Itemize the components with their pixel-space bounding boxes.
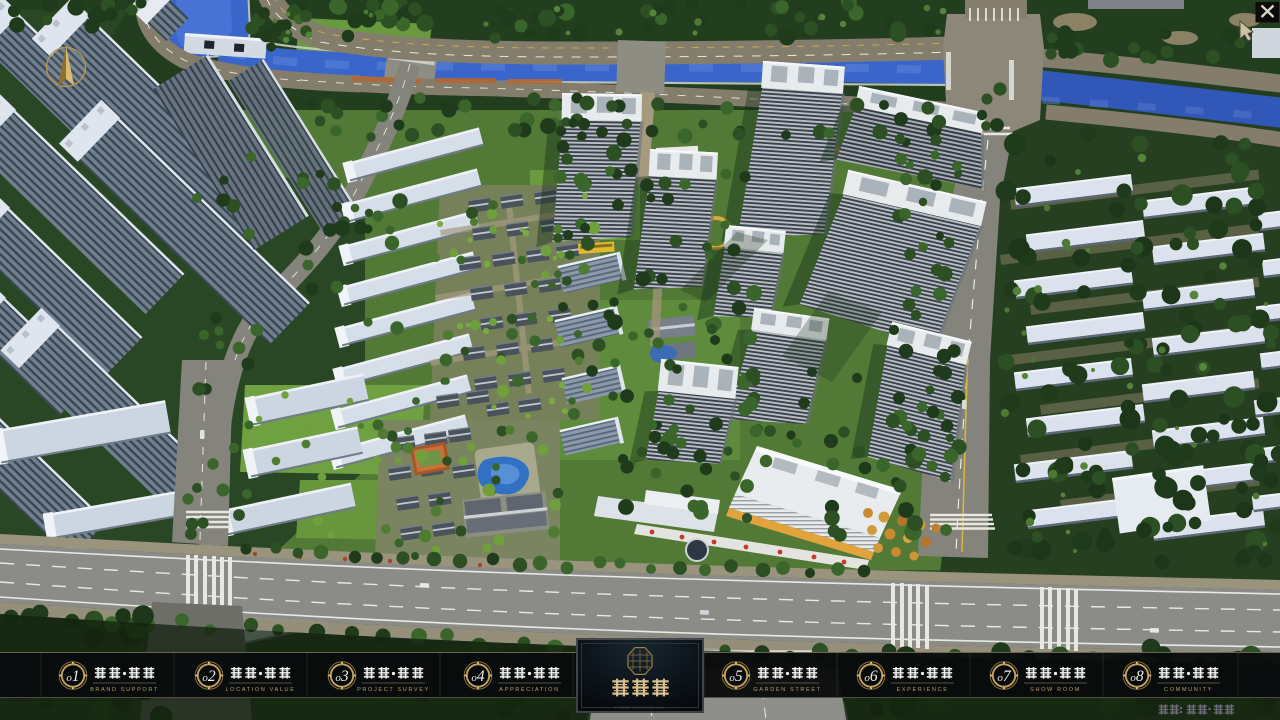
svg-text:LOCATION VALUE: LOCATION VALUE — [225, 687, 295, 693]
svg-text:APPRECIATION: APPRECIATION — [499, 687, 559, 693]
svg-text:PROJECT SURVEY: PROJECT SURVEY — [357, 687, 430, 693]
svg-text:BRAND SUPPORT: BRAND SUPPORT — [90, 687, 159, 693]
svg-text:COMMUNITY: COMMUNITY — [1164, 687, 1213, 693]
svg-text:SHOW ROOM: SHOW ROOM — [1030, 687, 1081, 693]
svg-text:EXPERIENCE: EXPERIENCE — [896, 687, 948, 693]
svg-text:GARDEN STREET: GARDEN STREET — [753, 687, 821, 693]
svg-text:FLOWER LANGUAGE HALL: FLOWER LANGUAGE HALL — [615, 706, 666, 710]
